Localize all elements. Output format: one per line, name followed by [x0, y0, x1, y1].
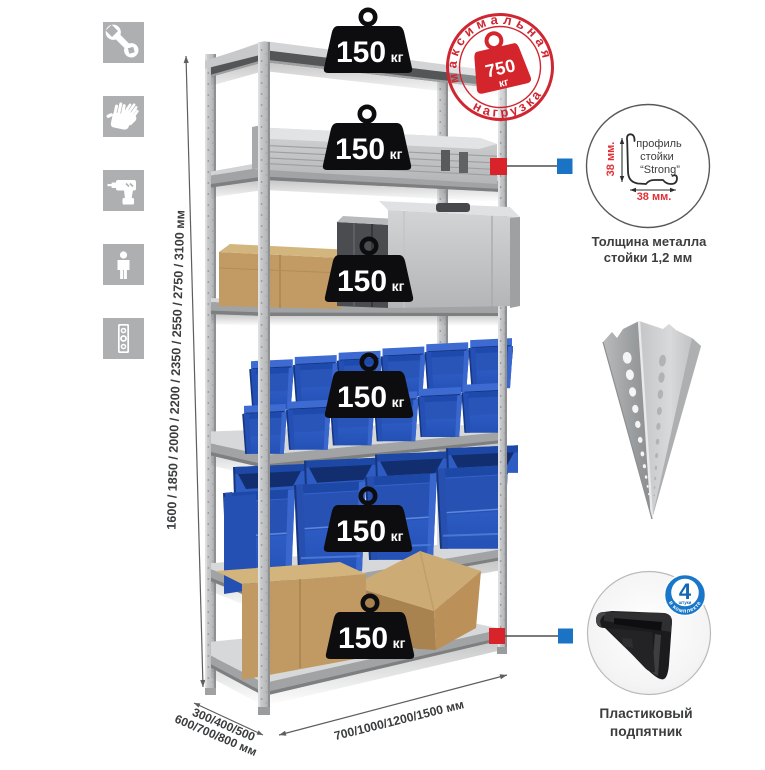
svg-text:Пластиковый: Пластиковый [599, 706, 692, 721]
svg-text:кг: кг [392, 394, 405, 410]
svg-text:стойки 1,2 мм: стойки 1,2 мм [604, 250, 692, 265]
svg-text:150: 150 [337, 265, 387, 298]
svg-text:подпятник: подпятник [610, 724, 682, 739]
svg-text:150: 150 [338, 622, 388, 655]
svg-text:кг: кг [391, 528, 404, 544]
svg-text:профиль: профиль [636, 138, 682, 150]
svg-text:Толщина металла: Толщина металла [592, 234, 707, 249]
svg-text:150: 150 [337, 381, 387, 414]
svg-text:кг: кг [391, 49, 404, 65]
svg-text:“Strong”: “Strong” [640, 164, 680, 176]
svg-text:38 мм.: 38 мм. [637, 191, 672, 203]
svg-text:кг: кг [393, 635, 406, 651]
svg-text:штуки: штуки [679, 600, 692, 605]
svg-text:стойки: стойки [640, 151, 674, 163]
svg-text:150: 150 [335, 133, 385, 166]
svg-text:кг: кг [392, 278, 405, 294]
svg-text:38 мм.: 38 мм. [605, 142, 617, 177]
svg-text:150: 150 [336, 515, 386, 548]
svg-text:150: 150 [336, 36, 386, 69]
svg-text:кг: кг [390, 146, 403, 162]
